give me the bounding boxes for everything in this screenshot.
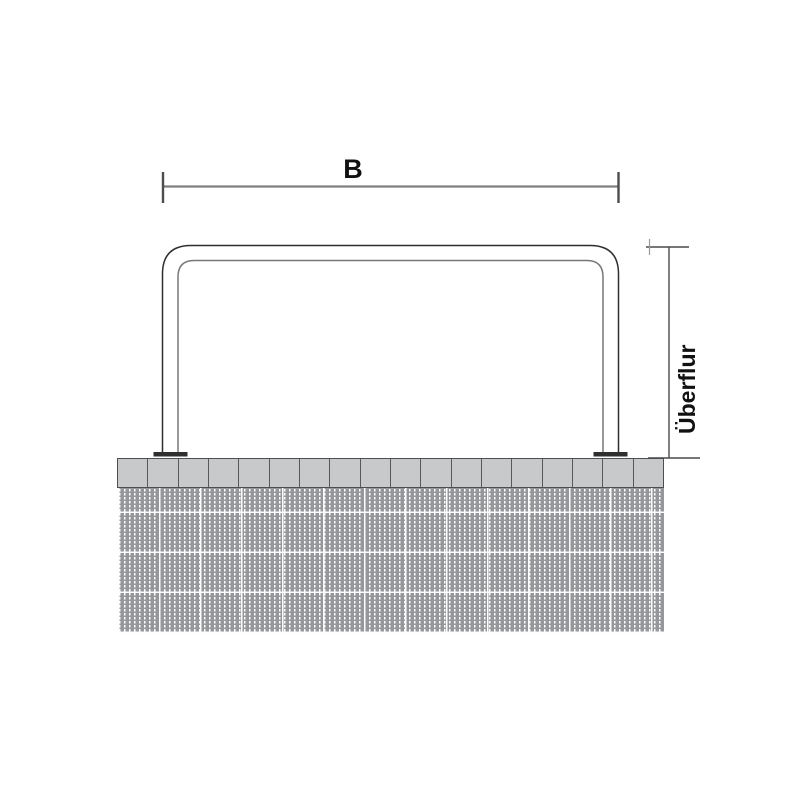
- technical-drawing: B Überflur: [0, 0, 800, 800]
- drawing-linework: B Überflur: [0, 0, 800, 800]
- right-base-flange: [594, 452, 628, 457]
- width-dimension-label: B: [343, 154, 363, 184]
- width-dimension-line: [163, 172, 619, 203]
- u-bracket-outer-contour: [163, 246, 619, 456]
- u-bracket-inner-contour: [178, 261, 603, 456]
- left-base-flange: [154, 452, 188, 457]
- height-dimension-label: Überflur: [674, 345, 700, 435]
